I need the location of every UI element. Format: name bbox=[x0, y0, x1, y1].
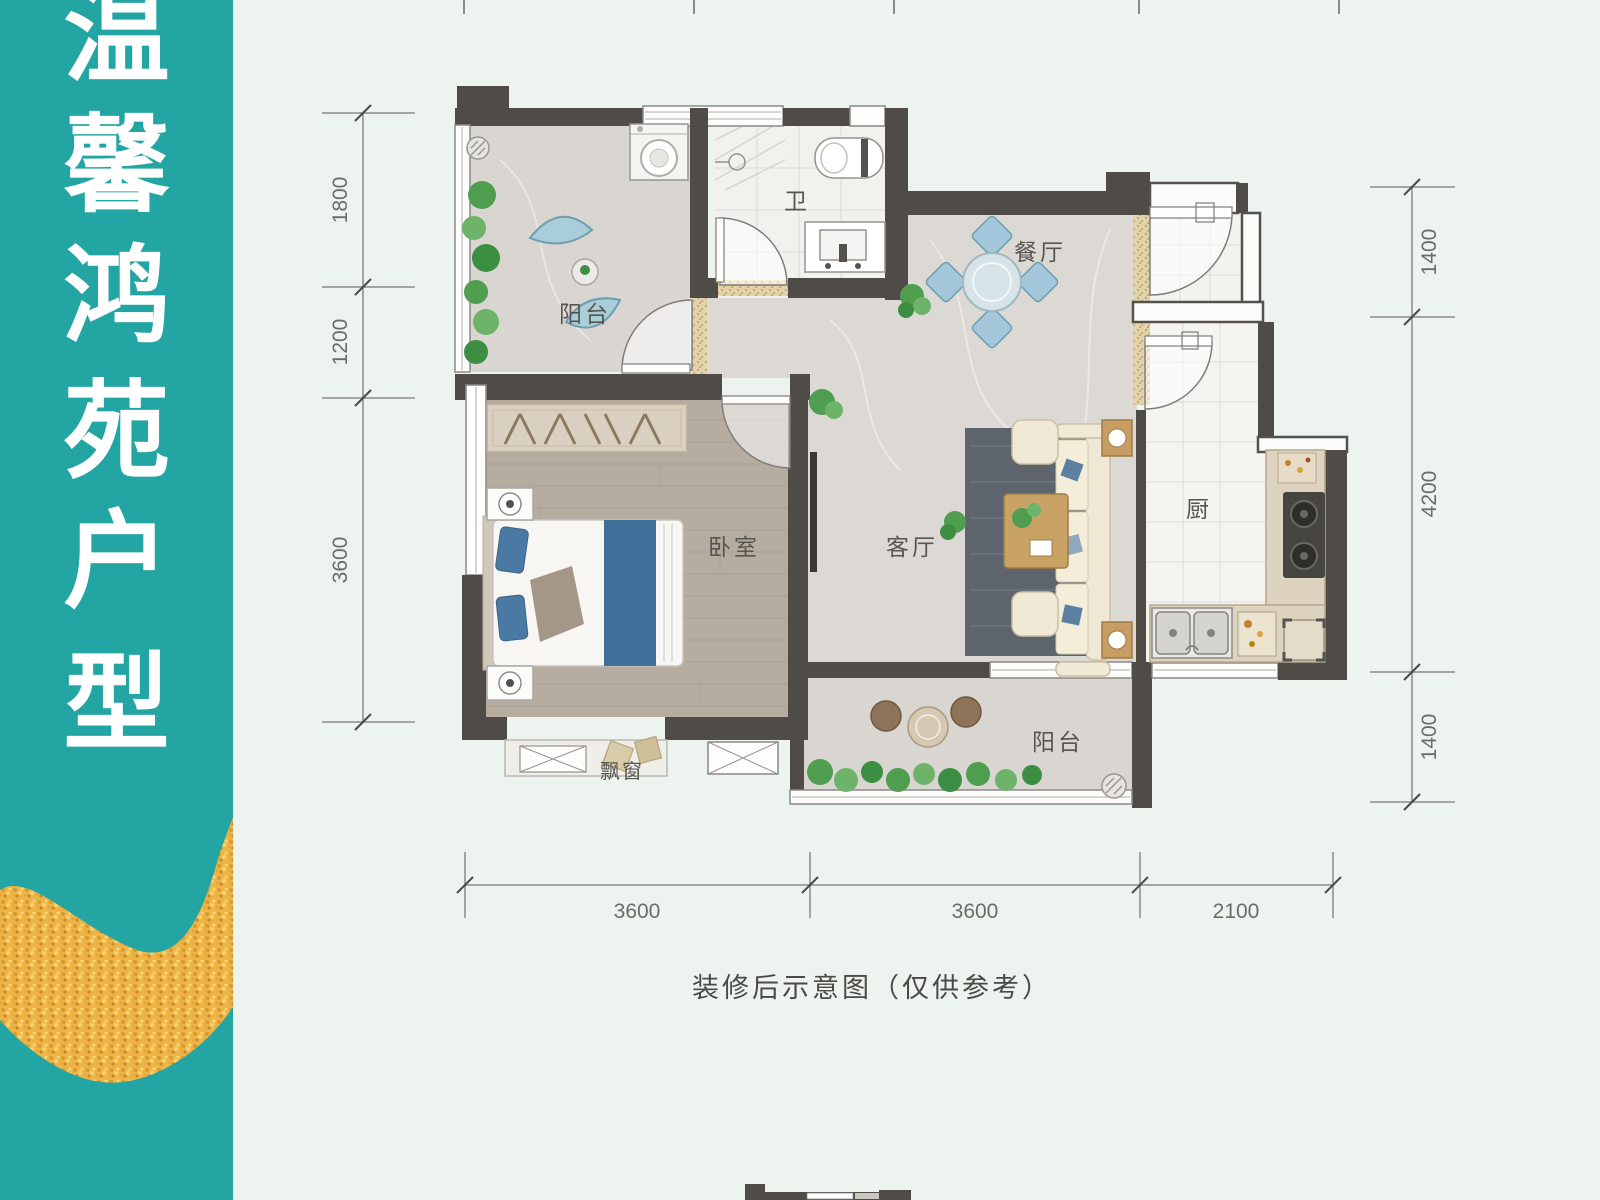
label-bedroom: 卧室 bbox=[708, 534, 760, 560]
floor-plan-svg: 阳台 卫 餐厅 卧室 客厅 厨 阳台 飘窗 1800 1200 3600 bbox=[0, 0, 1600, 1200]
cutting-board bbox=[1278, 453, 1316, 483]
kitchen-sink bbox=[1152, 608, 1232, 658]
tv-panel bbox=[810, 452, 817, 572]
window-platform bbox=[708, 742, 778, 774]
next-unit-fragment bbox=[745, 1184, 911, 1200]
wardrobe bbox=[487, 404, 687, 452]
dim-right-4200: 4200 bbox=[1418, 471, 1441, 518]
caption: 装修后示意图（仅供参考） bbox=[622, 966, 1122, 1005]
bedroom-furniture bbox=[483, 404, 687, 700]
balcony-chair-1 bbox=[871, 701, 901, 731]
fridge bbox=[1284, 620, 1324, 660]
dimension-bottom: 3600 3600 2100 bbox=[457, 852, 1341, 923]
dim-right-1400a: 1400 bbox=[1418, 229, 1441, 276]
floorplan-page: 温 馨 鸿 苑 户 型 bbox=[0, 0, 1600, 1200]
nightstand-bottom bbox=[487, 666, 533, 700]
hall-floor bbox=[707, 298, 910, 378]
label-dining: 餐厅 bbox=[1014, 239, 1066, 265]
dim-bottom-3600a: 3600 bbox=[614, 900, 661, 923]
armchair-bottom bbox=[1012, 592, 1058, 636]
bathroom-vanity bbox=[805, 222, 885, 272]
dim-bottom-3600b: 3600 bbox=[952, 900, 999, 923]
bed bbox=[483, 516, 683, 670]
toilet bbox=[815, 138, 883, 178]
nightstand-top bbox=[487, 488, 533, 520]
dim-bottom-2100: 2100 bbox=[1213, 900, 1260, 923]
living-floor bbox=[808, 374, 908, 662]
label-balcony-top: 阳台 bbox=[559, 301, 611, 327]
label-living: 客厅 bbox=[886, 534, 938, 560]
balcony-chair-2 bbox=[951, 697, 981, 727]
dim-right-1400b: 1400 bbox=[1418, 714, 1441, 761]
dim-left-1200: 1200 bbox=[329, 319, 352, 366]
dimension-top-stubs bbox=[464, 0, 1339, 14]
dim-left-1800: 1800 bbox=[329, 177, 352, 224]
coffee-table bbox=[1004, 494, 1068, 568]
balcony-table bbox=[908, 707, 948, 747]
label-bay-window: 飘窗 bbox=[600, 760, 644, 783]
dimension-right: 1400 4200 1400 bbox=[1370, 179, 1455, 810]
dim-left-3600: 3600 bbox=[329, 537, 352, 584]
dining-table bbox=[963, 253, 1021, 311]
armchair-top bbox=[1012, 420, 1058, 464]
label-bathroom: 卫 bbox=[784, 188, 810, 214]
label-kitchen: 厨 bbox=[1186, 496, 1212, 522]
washing-machine bbox=[630, 124, 688, 180]
stove bbox=[1283, 492, 1325, 578]
floor-drain bbox=[467, 137, 489, 159]
dimension-left: 1800 1200 3600 bbox=[322, 105, 415, 730]
prep-area bbox=[1238, 612, 1276, 656]
label-balcony-bottom: 阳台 bbox=[1032, 729, 1084, 755]
balcony-drain bbox=[1102, 774, 1126, 798]
